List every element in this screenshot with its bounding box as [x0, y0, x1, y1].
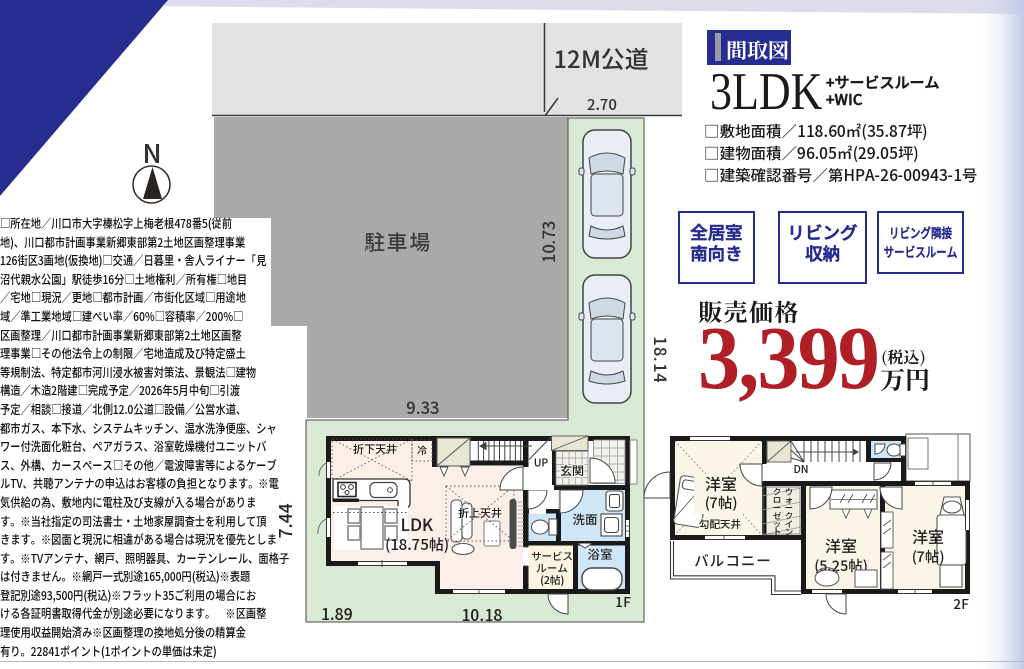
- svg-text:バルコニー: バルコニー: [694, 550, 772, 571]
- svg-text:クローゼット: クローゼット: [773, 486, 782, 538]
- svg-text:勾配天井: 勾配天井: [699, 517, 741, 532]
- svg-text:洋室: 洋室: [912, 524, 944, 548]
- svg-text:2F: 2F: [953, 593, 968, 613]
- svg-text:ウォークイン: ウォークイン: [785, 486, 794, 538]
- svg-text:DN: DN: [793, 462, 808, 477]
- svg-text:(7帖): (7帖): [704, 492, 737, 513]
- svg-text:(7帖): (7帖): [911, 546, 944, 567]
- svg-text:洋室: 洋室: [825, 533, 857, 557]
